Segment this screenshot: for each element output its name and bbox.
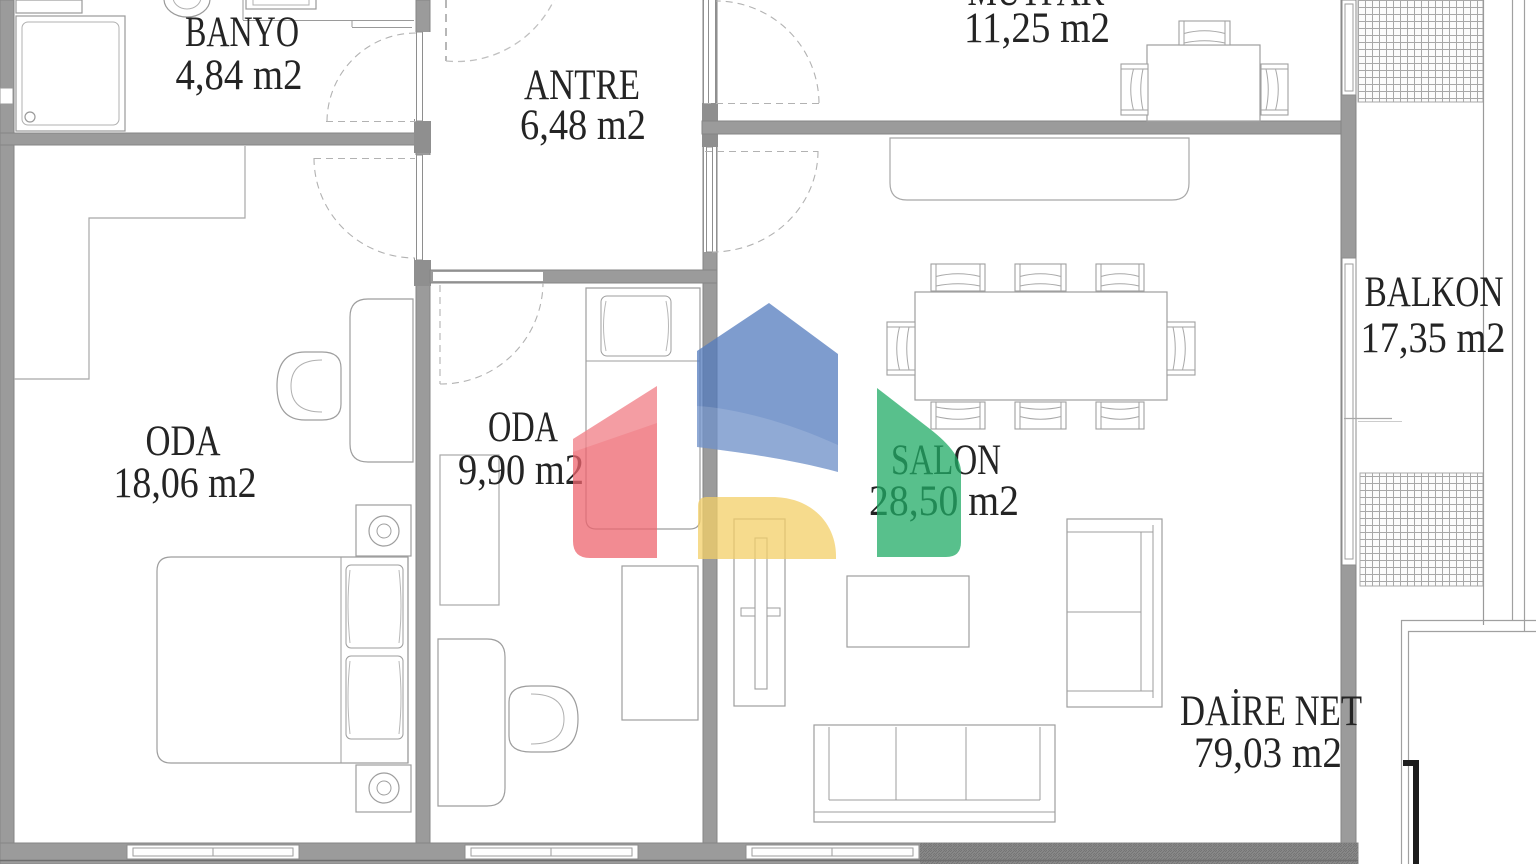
svg-text:18,06 m2: 18,06 m2 xyxy=(114,460,257,507)
svg-text:BANYO: BANYO xyxy=(185,9,299,56)
svg-text:ODA: ODA xyxy=(488,404,558,451)
svg-text:9,90 m2: 9,90 m2 xyxy=(458,447,584,494)
svg-text:BALKON: BALKON xyxy=(1365,269,1504,316)
svg-text:DAİRE NET: DAİRE NET xyxy=(1180,688,1362,735)
svg-text:ODA: ODA xyxy=(146,418,221,465)
svg-text:11,25 m2: 11,25 m2 xyxy=(964,5,1110,52)
svg-text:79,03 m2: 79,03 m2 xyxy=(1194,730,1342,777)
svg-text:4,84 m2: 4,84 m2 xyxy=(176,52,303,99)
svg-text:17,35 m2: 17,35 m2 xyxy=(1361,315,1506,362)
svg-text:6,48 m2: 6,48 m2 xyxy=(520,102,646,149)
